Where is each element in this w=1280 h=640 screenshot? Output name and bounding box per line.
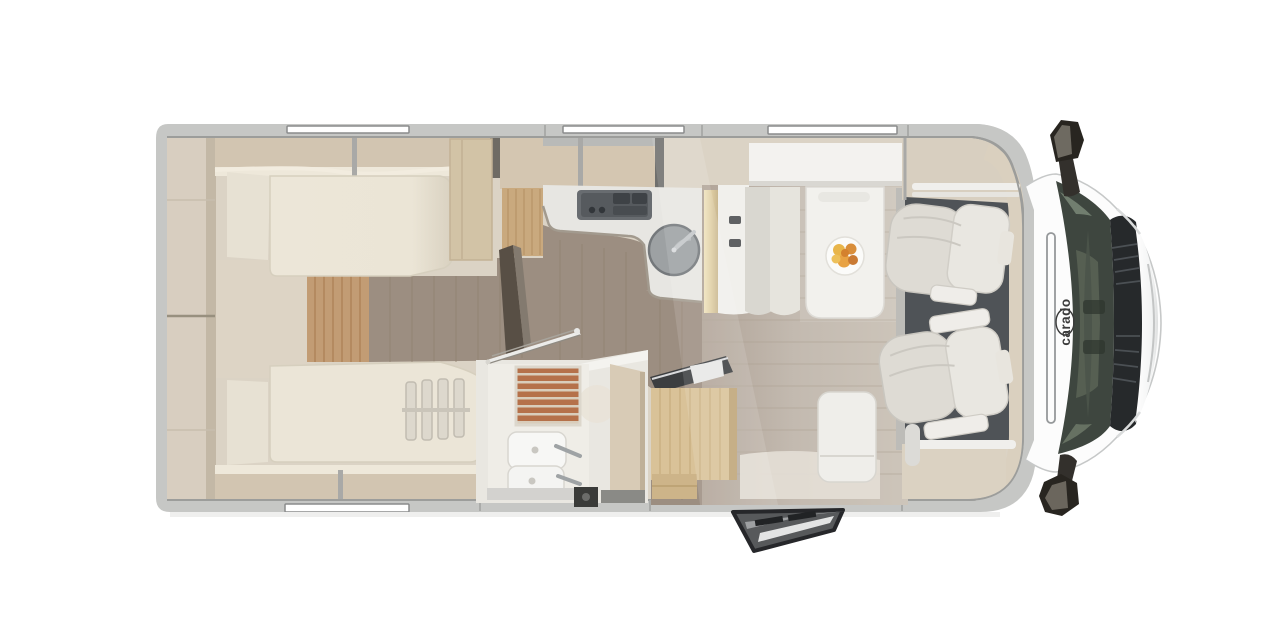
svg-text:carado: carado bbox=[1058, 298, 1073, 345]
